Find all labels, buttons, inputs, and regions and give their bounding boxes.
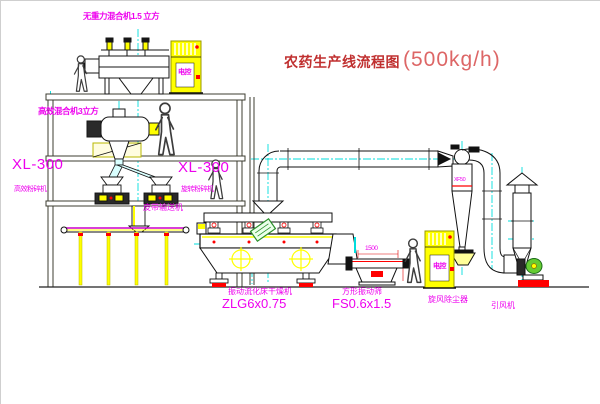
- label-cyclone: 旋风除尘器: [428, 296, 468, 304]
- label-gravity-free-mixer: 无重力混合机1.5 立方: [83, 12, 159, 21]
- mill-left: [95, 177, 129, 204]
- label-dryer-model: ZLG6x0.75: [222, 297, 286, 310]
- flow-diagram-canvas: 农药生产线流程图 (500kg/h) 无重力混合机1.5 立方 高效混合机3立方…: [0, 0, 600, 404]
- label-cyclone-model: XF50: [454, 178, 465, 184]
- page-title: 农药生产线流程图 (500kg/h): [284, 48, 501, 72]
- label-fan: 引风机: [491, 302, 515, 310]
- title-chinese: 农药生产线流程图: [284, 52, 400, 72]
- control-cabinet-top: [169, 41, 203, 93]
- high-efficiency-mixer: [87, 109, 159, 159]
- label-cabinet-bottom-text: 电控: [433, 263, 446, 270]
- label-cabinet-top-text: 电控: [178, 69, 191, 76]
- cyclone-separator: [451, 145, 479, 265]
- induced-draft-fan: [517, 259, 549, 288]
- discharge-chute: [108, 159, 161, 179]
- title-capacity: (500kg/h): [403, 48, 501, 72]
- label-mill-left-model: XL-300: [12, 157, 63, 172]
- exhaust-duct: [253, 148, 453, 214]
- label-belt-conveyor: 皮带输送机: [143, 204, 183, 212]
- vibrating-screen: [328, 234, 409, 285]
- label-screen-model: FS0.6x1.5: [332, 297, 391, 310]
- label-mill-right-model: XL-300: [178, 160, 229, 175]
- label-mill-right-name: 旋转粉碎机: [181, 186, 214, 193]
- label-dim-1500: 1500: [365, 246, 377, 253]
- label-screen-name: 方形振动筛: [342, 288, 382, 296]
- label-dryer-name: 振动流化床干燥机: [228, 288, 292, 296]
- control-cabinet-bottom: [423, 231, 456, 288]
- belt-conveyor: [61, 227, 189, 285]
- label-high-efficiency-mixer: 高效混合机3立方: [38, 107, 98, 116]
- mill-right: [144, 177, 178, 204]
- label-mill-left-name: 高效粉碎机: [14, 186, 47, 193]
- gravity-free-mixer: [79, 38, 169, 94]
